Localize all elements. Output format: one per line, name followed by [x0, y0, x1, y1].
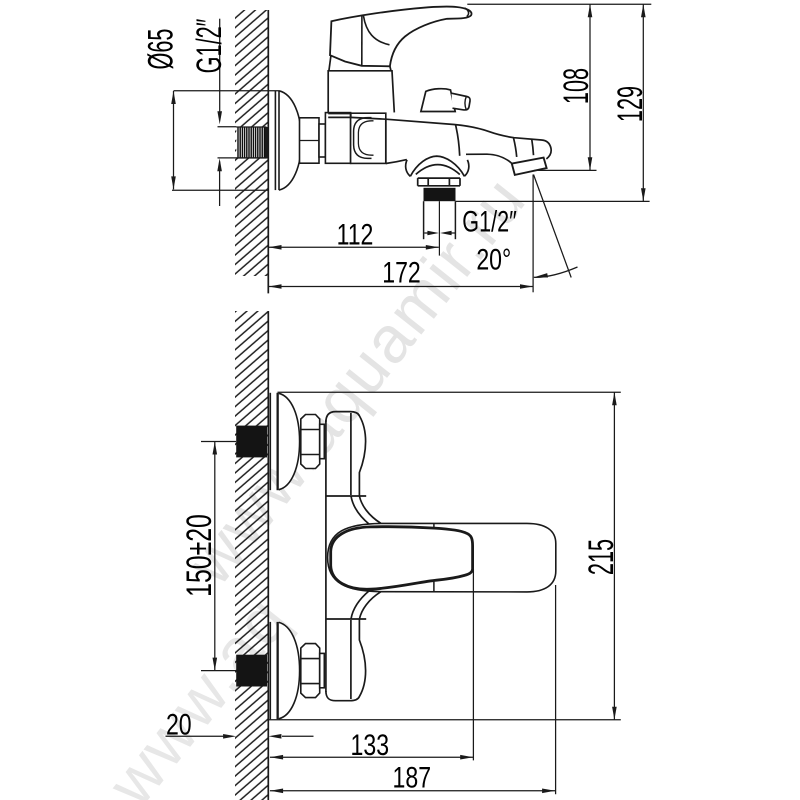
- svg-text:20°: 20°: [476, 243, 511, 277]
- svg-text:215: 215: [583, 539, 621, 575]
- svg-text:G1/2″: G1/2″: [462, 204, 516, 238]
- svg-text:129: 129: [612, 86, 650, 122]
- svg-text:G1/2″: G1/2″: [191, 19, 229, 74]
- svg-text:172: 172: [382, 256, 421, 290]
- svg-text:187: 187: [393, 761, 432, 795]
- svg-text:133: 133: [351, 728, 390, 762]
- svg-text:Ø65: Ø65: [142, 28, 180, 69]
- svg-text:150±20: 150±20: [181, 514, 219, 597]
- svg-text:112: 112: [337, 218, 374, 252]
- svg-text:20: 20: [166, 708, 192, 742]
- svg-text:108: 108: [558, 68, 596, 104]
